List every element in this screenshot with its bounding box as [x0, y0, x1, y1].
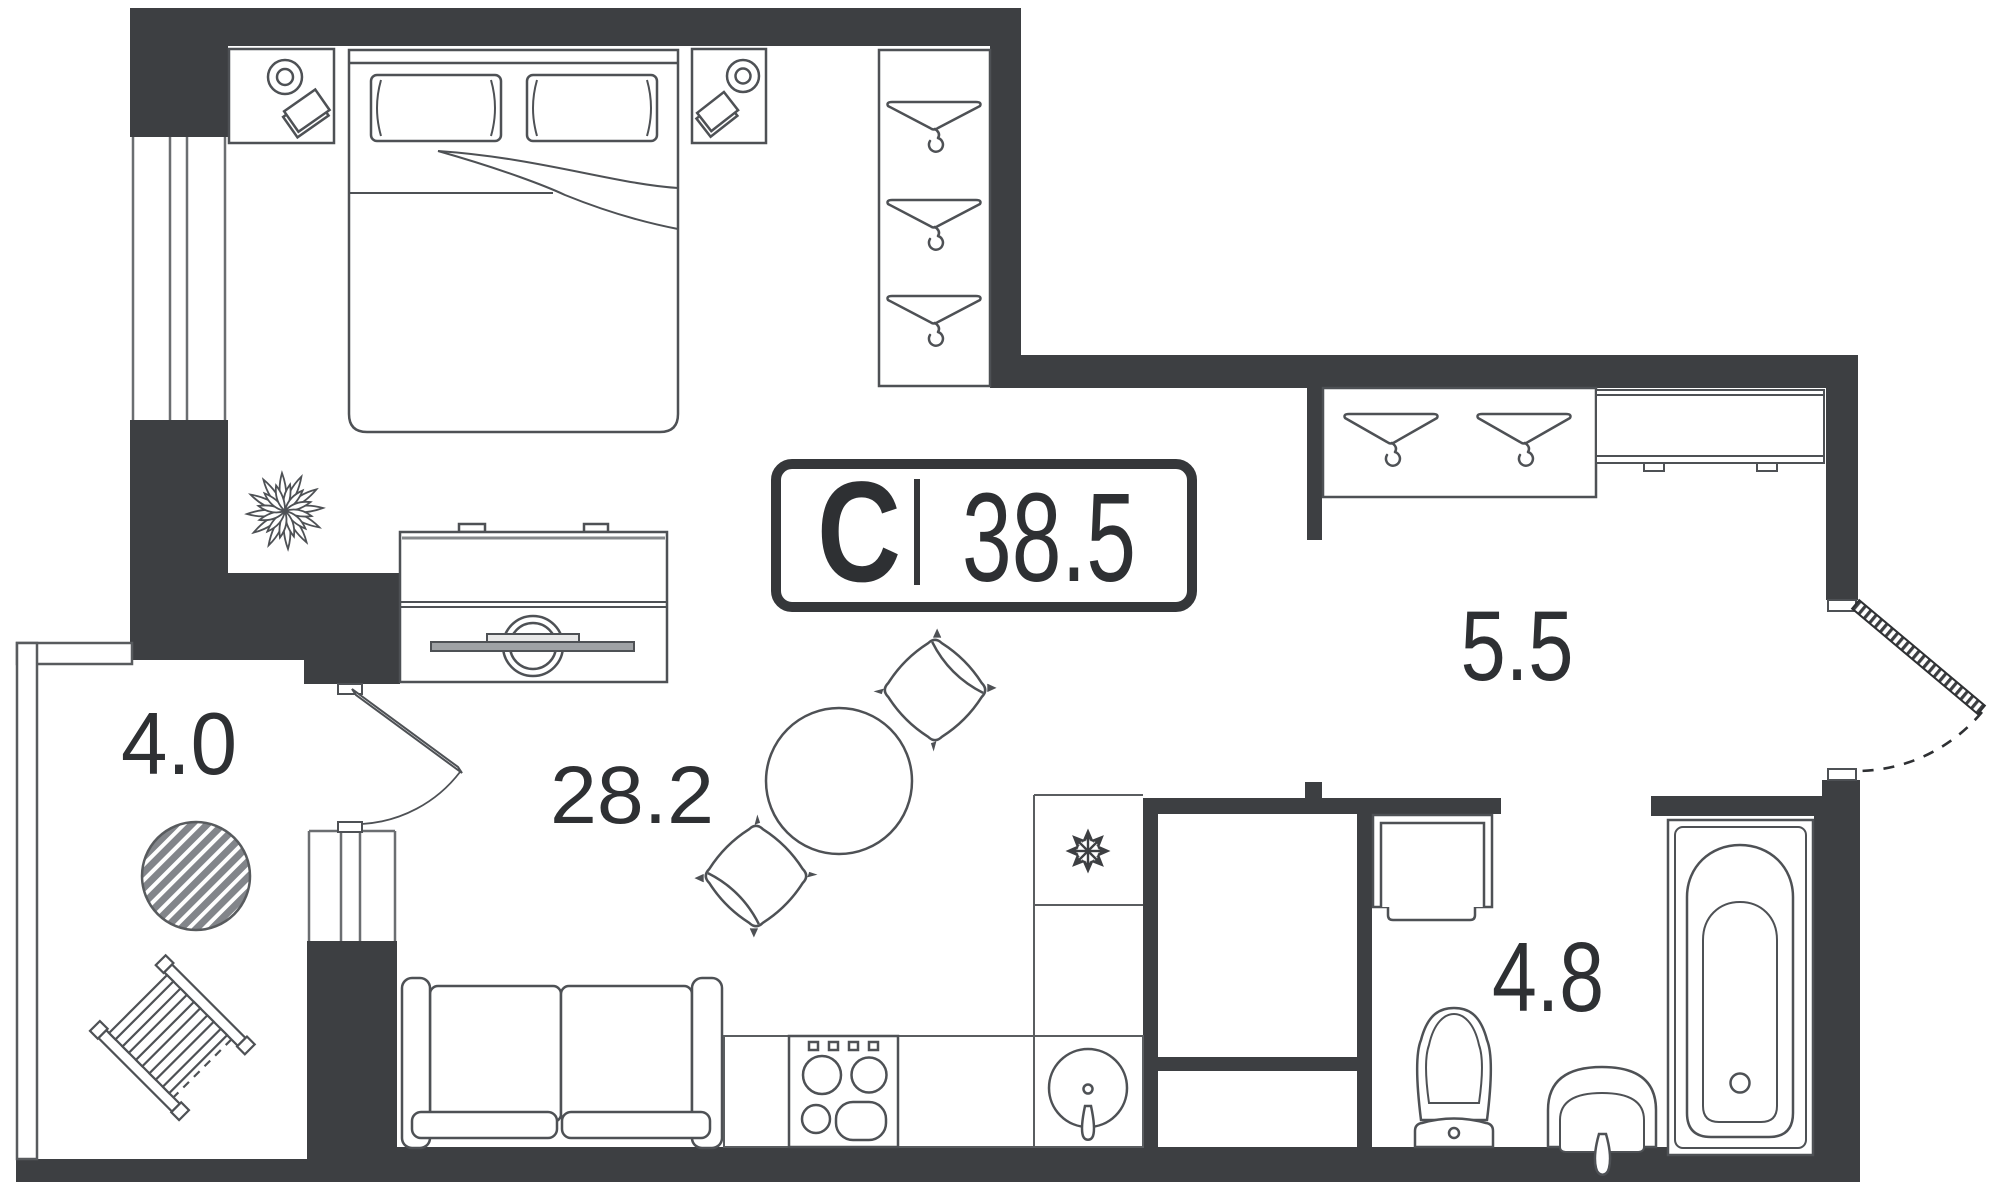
svg-text:4.8: 4.8 — [1492, 922, 1604, 1032]
svg-text:5.5: 5.5 — [1461, 590, 1574, 701]
svg-text:28.2: 28.2 — [550, 750, 714, 841]
svg-text:4.0: 4.0 — [121, 694, 237, 793]
svg-text:38.5: 38.5 — [962, 467, 1136, 608]
svg-text:С: С — [817, 453, 901, 612]
